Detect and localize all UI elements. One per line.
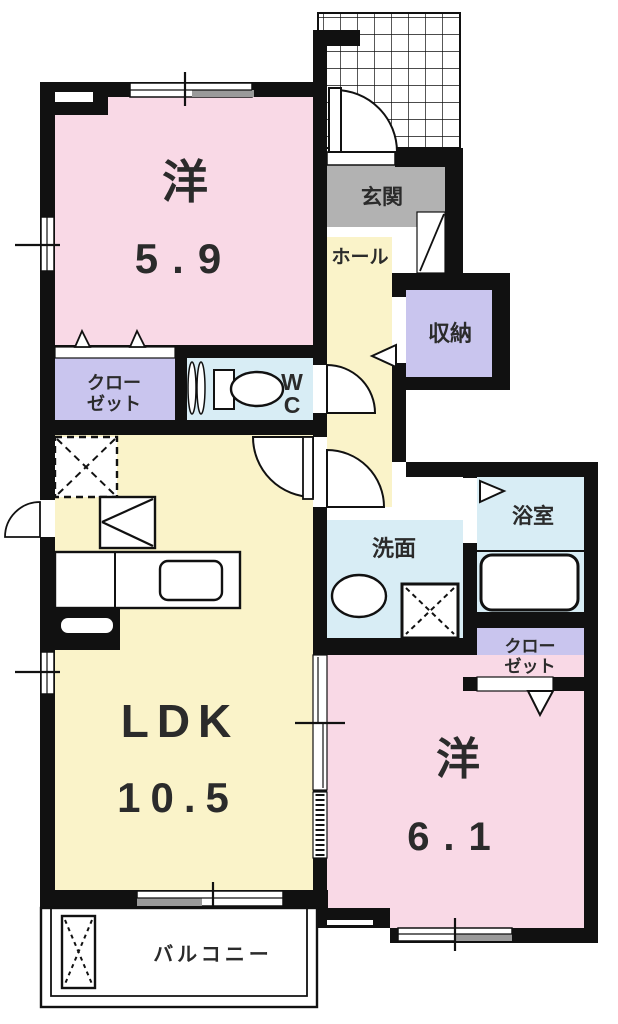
room-label-closet-left-1: クロー [87, 373, 141, 393]
room-label-bedroom-top: 洋 [162, 156, 208, 208]
kitchen-sink [160, 561, 222, 600]
room-label-closet-left-2: ゼット [87, 393, 141, 414]
room-label-washroom: 洗面 [372, 536, 416, 561]
room-label-entrance: 玄関 [361, 185, 403, 209]
room-label-closet-right-1: クロー [505, 637, 556, 656]
room-entrance-lower [327, 212, 417, 227]
room-size-ldk: 10.5 [117, 774, 239, 821]
balcony-hatch-box [62, 916, 95, 988]
room-label-bathroom: 浴室 [512, 504, 554, 528]
room-bedroom-top [55, 97, 313, 345]
room-label-balcony: バルコニー [153, 943, 273, 966]
sink-icon [332, 575, 386, 617]
window-ldk-left [15, 652, 60, 694]
room-size-bedroom-top: 5.9 [135, 235, 235, 282]
room-label-storage: 収納 [428, 321, 472, 346]
kitchen-end-wall [53, 608, 120, 650]
room-label-ldk: LDK [121, 695, 240, 747]
washing-machine-pan-icon [402, 584, 458, 638]
door-leaf-ldk [303, 437, 313, 499]
room-ldk [55, 435, 313, 890]
room-label-wc-2: C [284, 392, 301, 418]
refrigerator-space-icon [55, 437, 117, 497]
door-leaf-entrance [329, 88, 341, 152]
room-label-closet-right-2: ゼット [505, 656, 556, 676]
kitchen-counter [55, 552, 240, 608]
room-label-bedroom-bottom: 洋 [436, 735, 480, 784]
shoe-cabinet-icon [417, 212, 445, 273]
floorplan-drawing: 洋 5.9 玄関 ホール 収納 クロー ゼット W C 洗面 浴室 クロー ゼッ… [0, 0, 618, 1024]
stove-icon [100, 497, 155, 548]
room-size-bedroom-bottom: 6.1 [407, 815, 505, 859]
bathtub-icon [481, 555, 578, 610]
toilet-icon [214, 370, 283, 409]
floorplan: 洋 5.9 玄関 ホール 収納 クロー ゼット W C 洗面 浴室 クロー ゼッ… [0, 0, 618, 1024]
room-label-hall: ホール [331, 247, 388, 268]
window-bedroom-left [15, 217, 60, 271]
door-arc-kitchen-side [5, 502, 40, 537]
